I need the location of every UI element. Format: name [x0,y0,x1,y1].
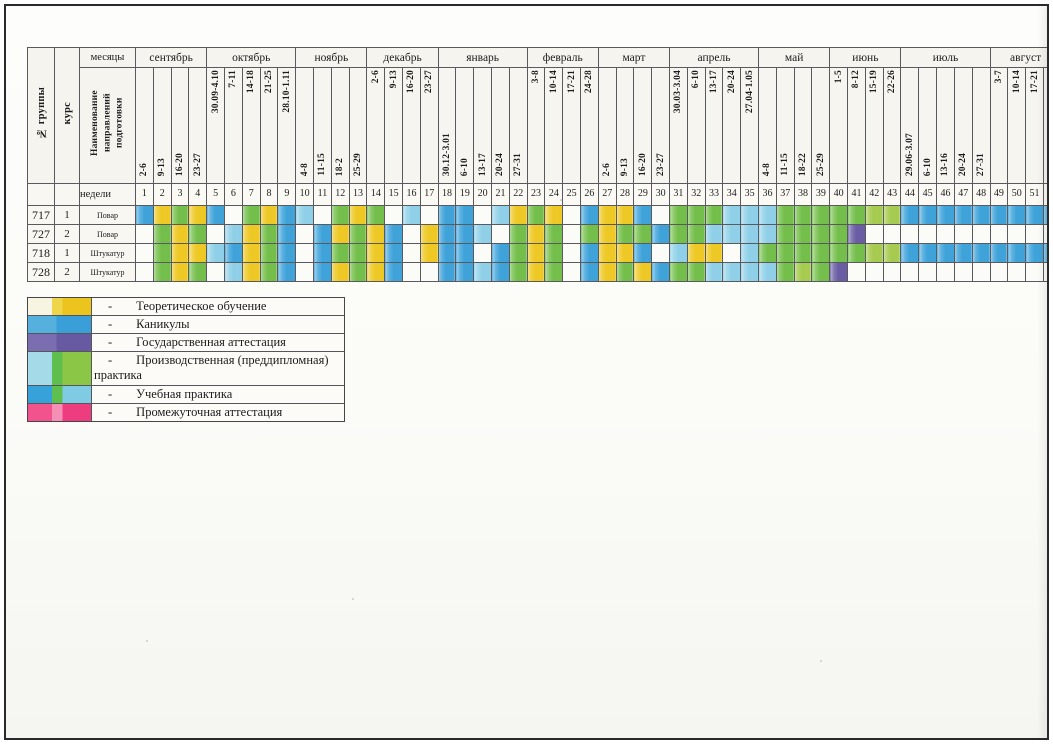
week-cell [776,225,794,244]
week-number-cell: 2 [153,184,171,206]
week-date-label: 29.06-3.07 [905,131,915,178]
week-date-header: 9-13 [616,68,634,184]
week-number-cell: 46 [937,184,955,206]
week-cell [509,225,527,244]
week-date-header: 20-24 [492,68,510,184]
month-header: август [990,48,1047,68]
week-date-label: 2-6 [139,161,149,178]
group-column-label: № группы [36,85,47,140]
week-number-cell: 42 [865,184,883,206]
week-cell [385,206,403,225]
week-number-cell: 12 [331,184,349,206]
week-date-header: 3-8 [527,68,545,184]
week-cell [509,263,527,282]
week-cell [492,225,510,244]
week-date-header: 8-12 [848,68,866,184]
month-header: октябрь [207,48,296,68]
week-cell [759,206,777,225]
month-header: апрель [670,48,759,68]
week-date-label: 3-7 [994,68,1004,85]
week-cell [652,244,670,263]
legend-label: Государственная аттестация [136,335,286,349]
week-number-cell: 8 [260,184,278,206]
week-date-header: 27-31 [509,68,527,184]
week-date-label: 27-31 [513,151,523,178]
week-date-header: 20-24 [723,68,741,184]
week-number-cell: 34 [723,184,741,206]
week-number-cell: 15 [385,184,403,206]
week-cell [972,225,990,244]
week-cell [189,206,207,225]
week-date-label: 10-14 [549,68,559,95]
week-date-label: 23-27 [193,151,203,178]
week-cell [581,206,599,225]
week-cell [367,263,385,282]
week-cell [598,244,616,263]
month-header: ноябрь [296,48,367,68]
schedule-row: 7171Повар [28,206,1048,225]
week-cell [723,206,741,225]
week-cell [260,225,278,244]
legend-text: -Теоретическое обучение [92,298,344,315]
week-date-header: 11-15 [776,68,794,184]
week-date-label: 2-6 [371,68,381,85]
week-cell [153,244,171,263]
week-date-label: 11-15 [317,151,327,178]
week-cell [225,225,243,244]
week-cell [171,225,189,244]
week-cell [545,206,563,225]
week-date-header: 27-31 [972,68,990,184]
week-date-header: 30.09-4.10 [207,68,225,184]
week-cell [759,244,777,263]
week-cell [189,244,207,263]
week-date-label: 8-12 [851,68,861,90]
month-header: декабрь [367,48,438,68]
week-cell [652,225,670,244]
week-cell [563,225,581,244]
week-cell [954,244,972,263]
week-number-cell: 9 [278,184,296,206]
week-date-label: 17-21 [567,68,577,95]
page-content: № группы курс месяцы сентябрьоктябрьнояб… [6,6,1047,738]
week-date-label: 20-24 [958,151,968,178]
week-cell [278,244,296,263]
week-number-cell: 7 [242,184,260,206]
week-cell [527,263,545,282]
week-cell [545,244,563,263]
week-cell [242,263,260,282]
week-cell [670,206,688,225]
week-cell [474,206,492,225]
week-date-header: 2-6 [598,68,616,184]
week-cell [420,225,438,244]
week-cell [474,225,492,244]
week-cell [741,244,759,263]
week-date-header: 20-24 [954,68,972,184]
week-number-cell: 20 [474,184,492,206]
week-date-header: 23-27 [189,68,207,184]
week-cell [1043,263,1047,282]
week-cell [545,225,563,244]
week-number-cell: 27 [598,184,616,206]
week-cell [616,225,634,244]
week-date-header: 16-20 [403,68,421,184]
week-date-header: 25-29 [812,68,830,184]
week-date-label: 1-5 [834,68,844,85]
month-header: январь [438,48,527,68]
month-header: февраль [527,48,598,68]
legend-row: -Теоретическое обучение [28,298,344,316]
program-column-label: Наименование направлений подготовки [89,68,126,178]
week-date-label: 13-16 [940,151,950,178]
week-cell [705,206,723,225]
week-cell [278,206,296,225]
week-date-label: 18-22 [798,151,808,178]
week-cell [812,263,830,282]
week-cell [883,263,901,282]
week-cell [456,206,474,225]
week-date-label: 15-19 [869,68,879,95]
legend-dash: - [108,405,112,420]
week-cell [581,225,599,244]
week-cell [741,225,759,244]
schedule-row: 7181Штукатур [28,244,1048,263]
week-date-label: 23-27 [656,151,666,178]
week-date-label: 27.04-1.05 [745,68,755,115]
week-number-cell: 28 [616,184,634,206]
week-number-cell: 3 [171,184,189,206]
week-cell [598,225,616,244]
week-date-label: 14-18 [246,68,256,95]
week-number-cell: 47 [954,184,972,206]
legend-swatch-training-practice [28,386,92,403]
week-cell [242,206,260,225]
week-date-header: 25-29 [349,68,367,184]
week-cell [1008,225,1026,244]
week-cell [865,225,883,244]
week-cell [794,244,812,263]
week-number-cell: 6 [225,184,243,206]
week-date-header: 23-27 [652,68,670,184]
week-cell [598,263,616,282]
week-date-header: 10-14 [545,68,563,184]
week-cell [456,244,474,263]
week-cell [901,225,919,244]
week-number-cell: 43 [883,184,901,206]
week-date-header: 28.10-1.11 [278,68,296,184]
week-cell [153,263,171,282]
week-cell [883,206,901,225]
legend-row: -Учебная практика [28,386,344,404]
week-date-label: 20-24 [727,68,737,95]
week-cell [652,263,670,282]
week-cell [242,244,260,263]
week-number-cell: 35 [741,184,759,206]
week-date-header: 27.04-1.05 [741,68,759,184]
week-date-label: 27-31 [976,151,986,178]
week-cell [331,263,349,282]
legend-label: Учебная практика [136,387,232,401]
week-cell [776,206,794,225]
week-cell [349,244,367,263]
week-cell [830,206,848,225]
week-date-label: 16-20 [406,68,416,95]
calendar-wrap: № группы курс месяцы сентябрьоктябрьнояб… [27,47,1047,285]
week-cell [456,263,474,282]
week-cell [207,206,225,225]
week-cell [581,244,599,263]
course-column-label: курс [62,100,73,126]
legend-text: -Производственная (преддипломная) практи… [92,352,344,385]
week-cell [420,263,438,282]
week-date-header: 17-21 [1026,68,1044,184]
week-cell [527,244,545,263]
legend-swatch-interim-attestation [28,404,92,421]
week-cell [492,263,510,282]
scan-speckle [352,598,354,600]
week-number-cell: 41 [848,184,866,206]
week-cell [314,263,332,282]
week-cell [367,206,385,225]
week-cell [901,206,919,225]
week-cell [901,244,919,263]
week-cell [563,244,581,263]
week-date-header: 1-5 [830,68,848,184]
week-number-cell: 25 [563,184,581,206]
week-date-label: 9-13 [157,156,167,178]
week-cell [865,206,883,225]
week-cell [634,263,652,282]
dates-row: Наименование направлений подготовки 2-69… [28,68,1048,184]
legend-dash: - [108,299,112,314]
week-cell [687,263,705,282]
week-cell [492,244,510,263]
week-cell [1043,244,1047,263]
week-date-header: 11-15 [314,68,332,184]
week-cell [385,263,403,282]
week-date-header: 13-16 [937,68,955,184]
week-date-label: 30.12-3.01 [442,131,452,178]
week-cell [367,225,385,244]
week-cell [919,206,937,225]
week-date-header: 16-20 [171,68,189,184]
week-cell [420,244,438,263]
week-cell [919,263,937,282]
week-date-header: 9-13 [385,68,403,184]
week-cell [153,206,171,225]
week-cell [171,244,189,263]
week-cell [705,225,723,244]
scan-speckle [820,660,822,662]
week-number-cell: 51 [1026,184,1044,206]
week-cell [848,244,866,263]
week-date-header: 15-19 [865,68,883,184]
week-date-label: 6-10 [691,68,701,90]
week-cell [225,206,243,225]
legend-row: -Государственная аттестация [28,334,344,352]
week-date-label: 18-2 [335,156,345,178]
program-name-cell: Штукатур [80,263,136,282]
week-date-header: 22-26 [883,68,901,184]
week-date-label: 13-17 [709,68,719,95]
legend-text: -Государственная аттестация [92,334,344,351]
week-number-cell: 10 [296,184,314,206]
week-cell [260,244,278,263]
week-date-label: 24-28 [584,68,594,95]
week-number-cell: 14 [367,184,385,206]
week-cell [937,225,955,244]
week-cell [937,206,955,225]
scan-speckle [560,199,563,201]
week-cell [331,206,349,225]
weeks-label-cell: недели [80,184,136,206]
week-cell [794,225,812,244]
empty-group-cell [28,184,55,206]
week-cell [403,244,421,263]
week-cell [296,244,314,263]
week-cell [563,206,581,225]
empty-course-cell [55,184,80,206]
scanned-schedule-page: { "table": { "group_label": "№ группы", … [0,0,1053,744]
week-date-label: 6-10 [460,156,470,178]
month-header: май [759,48,830,68]
week-cell [1008,206,1026,225]
week-date-header: 9-13 [153,68,171,184]
week-date-header: 30.03-3.04 [670,68,688,184]
week-cell [581,263,599,282]
week-date-header: 6-10 [687,68,705,184]
week-cell [1008,244,1026,263]
week-date-label: 3-8 [531,68,541,85]
week-cell [652,206,670,225]
week-cell [296,206,314,225]
week-cell [474,263,492,282]
week-cell [1026,225,1044,244]
week-cell [331,244,349,263]
week-cell [848,263,866,282]
week-date-header: 14-18 [242,68,260,184]
week-cell [153,225,171,244]
legend-label: Каникулы [136,317,189,331]
week-cell [367,244,385,263]
legend-label: Промежуточная аттестация [136,405,282,419]
week-date-label: 4-8 [300,161,310,178]
week-cell [937,244,955,263]
week-date-label: 30.09-4.10 [211,68,221,115]
week-cell [278,263,296,282]
week-date-label: 2-6 [602,161,612,178]
week-cell [830,244,848,263]
week-cell [776,244,794,263]
week-cell [883,244,901,263]
week-number-cell: 33 [705,184,723,206]
week-date-header: 10-14 [1008,68,1026,184]
week-cell [207,263,225,282]
week-cell [830,263,848,282]
week-cell [438,244,456,263]
week-cell [687,206,705,225]
month-header: июнь [830,48,901,68]
week-date-label: 6-10 [923,156,933,178]
week-cell [509,206,527,225]
legend-label: Теоретическое обучение [136,299,266,313]
week-cell [492,206,510,225]
legend-dash: - [108,387,112,402]
week-number-cell: 39 [812,184,830,206]
week-number-cell: 48 [972,184,990,206]
course-number-cell: 1 [55,244,80,263]
week-date-header: 24-28 [1043,68,1047,184]
legend-row: -Каникулы [28,316,344,334]
week-cell [634,206,652,225]
legend-swatch-vacation [28,316,92,333]
week-cell [812,206,830,225]
legend-text: -Промежуточная аттестация [92,404,344,421]
legend-row: -Промежуточная аттестация [28,404,344,421]
week-date-label: 11-15 [780,151,790,178]
weeks-row: недели 123456789101112131415161718192021… [28,184,1048,206]
week-cell [937,263,955,282]
week-cell [296,263,314,282]
week-number-cell: 23 [527,184,545,206]
week-date-label: 16-20 [175,151,185,178]
week-cell [171,206,189,225]
legend-swatch-pre-diploma-practice [28,352,92,385]
week-number-cell: 32 [687,184,705,206]
week-date-label: 25-29 [353,151,363,178]
week-date-header: 21-25 [260,68,278,184]
legend-text: -Учебная практика [92,386,344,403]
week-number-cell: 45 [919,184,937,206]
week-cell [687,244,705,263]
week-cell [296,225,314,244]
week-cell [919,244,937,263]
schedule-row: 7282Штукатур [28,263,1048,282]
week-cell [225,263,243,282]
week-date-header: 13-17 [474,68,492,184]
week-cell [349,263,367,282]
week-date-label: 4-8 [762,161,772,178]
week-date-label: 28.10-1.11 [282,68,292,115]
week-cell [527,206,545,225]
week-number-cell: 16 [403,184,421,206]
group-number-cell: 717 [28,206,55,225]
program-name-cell: Штукатур [80,244,136,263]
week-date-header: 7-11 [225,68,243,184]
week-cell [509,244,527,263]
week-cell [972,263,990,282]
months-label-cell: месяцы [80,48,136,68]
week-cell [616,206,634,225]
week-cell [972,244,990,263]
week-cell [954,263,972,282]
legend-text: -Каникулы [92,316,344,333]
week-cell [136,206,154,225]
week-cell [438,206,456,225]
week-cell [1043,225,1047,244]
week-date-label: 17-21 [1030,68,1040,95]
week-number-cell: 1 [136,184,154,206]
week-number-cell: 24 [545,184,563,206]
week-date-header: 4-8 [759,68,777,184]
week-cell [385,225,403,244]
week-cell [990,263,1008,282]
week-date-label: 13-17 [478,151,488,178]
week-cell [990,225,1008,244]
week-cell [278,225,296,244]
week-cell [527,225,545,244]
